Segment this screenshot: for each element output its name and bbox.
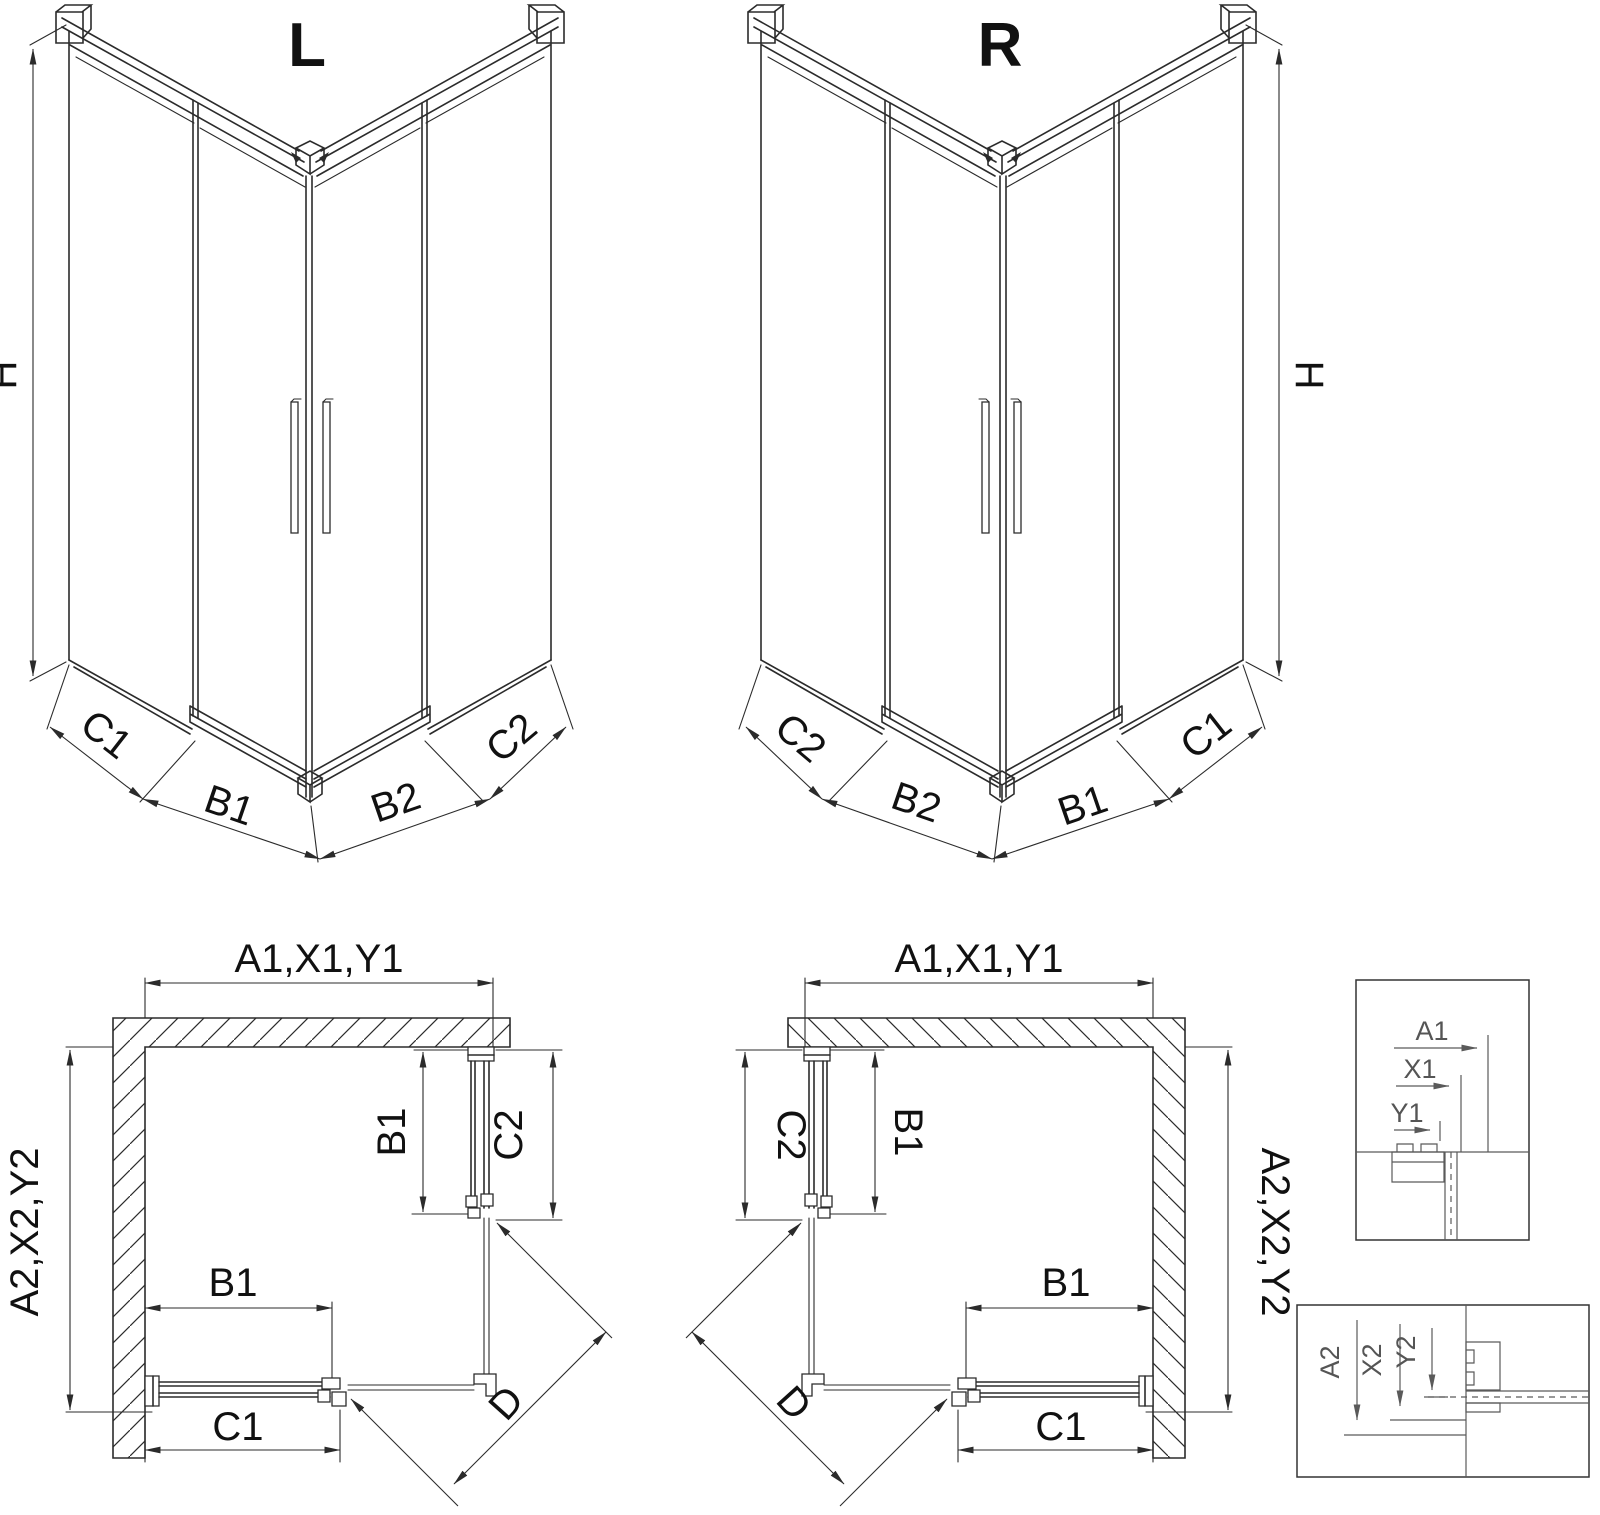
detail-dim-label: Y1 — [1390, 1098, 1423, 1128]
plan-width-label: A1,X1,Y1 — [234, 937, 403, 981]
detail-dim-label: A2 — [1315, 1345, 1345, 1378]
side-door-dim-label: B1 — [370, 1108, 414, 1157]
detail-dim-label: A1 — [1415, 1016, 1448, 1046]
bottom-outer-dim-label: C1 — [212, 1405, 263, 1449]
plan-depth-label: A2,X2,Y2 — [1253, 1147, 1297, 1316]
height-label: H — [1287, 361, 1331, 390]
drawing-canvas: L H C1 B1 B2 C2 R H C2 B2 B1 C1 A1,X1,Y1… — [0, 0, 1600, 1515]
side-door-dim-label: C2 — [487, 1109, 531, 1160]
detail-dim-label: X2 — [1357, 1343, 1387, 1376]
bottom-door-dim-label: B1 — [209, 1261, 258, 1305]
side-door-dim-label: B1 — [886, 1108, 930, 1157]
detail-dim-label: Y2 — [1391, 1335, 1421, 1368]
plan-width-label: A1,X1,Y1 — [894, 937, 1063, 981]
shower-enclosure-technical-drawing: L H C1 B1 B2 C2 R H C2 B2 B1 C1 A1,X1,Y1… — [0, 0, 1600, 1515]
plan-depth-label: A2,X2,Y2 — [3, 1147, 47, 1316]
detail-dim-label: X1 — [1403, 1054, 1436, 1084]
height-label: H — [0, 361, 25, 390]
bottom-door-dim-label: B1 — [1042, 1261, 1091, 1305]
variant-title-left: L — [288, 11, 326, 80]
side-door-dim-label: C2 — [769, 1109, 813, 1160]
bottom-outer-dim-label: C1 — [1035, 1405, 1086, 1449]
variant-title-right: R — [978, 11, 1023, 80]
